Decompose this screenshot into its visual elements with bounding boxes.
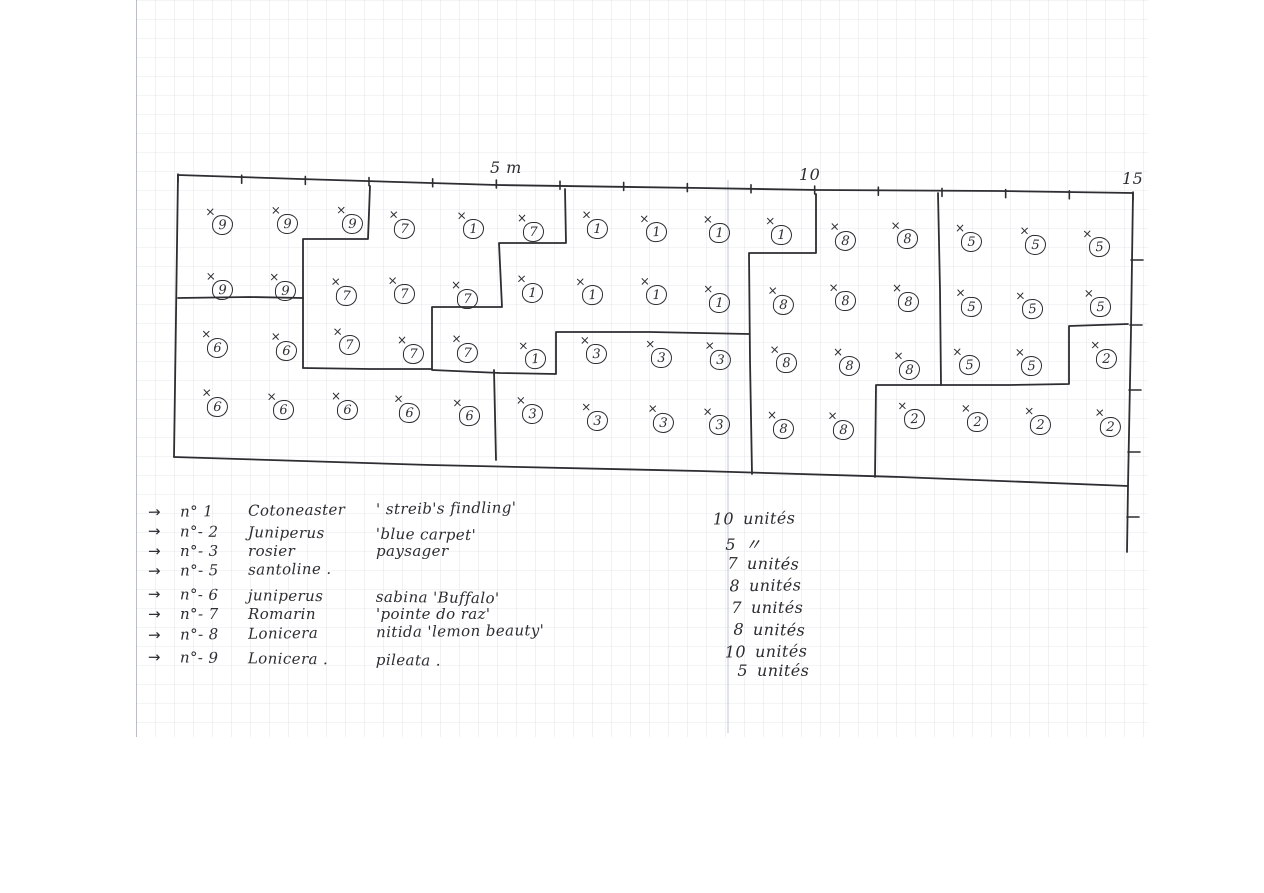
arrow-icon: →	[148, 542, 178, 560]
quantity-unit: unités	[757, 661, 809, 680]
quantity-value: 5	[720, 661, 748, 680]
quantity-unit: unités	[747, 554, 800, 574]
plant-number-circle: 1	[582, 284, 604, 305]
plant-mark-n3: ×3	[583, 407, 613, 434]
legend-number: n°- 8	[180, 625, 240, 644]
plant-mark-n1: ×1	[642, 281, 672, 308]
plant-mark-n3: ×3	[705, 345, 736, 373]
quantity-unit: unités	[743, 508, 796, 528]
divider-zone7-bottom	[303, 368, 432, 369]
plant-mark-n7: ×7	[389, 214, 420, 242]
plant-number-circle: 1	[522, 283, 544, 304]
plant-mark-n1: ×1	[518, 278, 549, 305]
plant-number-circle: 6	[275, 340, 297, 361]
plant-number-circle: 3	[586, 344, 607, 364]
plant-number-circle: 5	[1089, 236, 1111, 257]
plant-mark-n5: ×5	[954, 350, 985, 378]
x-marker: ×	[518, 338, 529, 353]
plant-mark-n5: ×5	[957, 292, 988, 319]
plant-mark-n5: ×5	[1021, 230, 1052, 257]
quantity-value: 8	[716, 619, 744, 638]
x-marker: ×	[201, 385, 212, 400]
plant-mark-n2: ×2	[899, 404, 930, 432]
x-marker: ×	[397, 333, 407, 347]
plant-mark-n1: ×1	[577, 280, 608, 308]
plant-mark-n1: ×1	[705, 289, 735, 316]
quantity-value: 7	[714, 598, 742, 617]
x-marker: ×	[827, 408, 838, 422]
plant-mark-n1: ×1	[641, 217, 672, 245]
x-marker: ×	[892, 281, 902, 295]
plant-number-circle: 1	[463, 219, 485, 240]
plant-number-circle: 6	[399, 403, 421, 424]
plant-number-circle: 8	[834, 230, 856, 251]
plant-name: Lonicera	[248, 624, 318, 643]
plant-number-circle: 9	[275, 281, 296, 301]
plant-mark-n2: ×2	[1095, 412, 1126, 440]
plant-mark-n5: ×5	[1084, 232, 1115, 260]
legend-number: n°- 7	[180, 605, 240, 623]
divider-zone8-zone5	[938, 193, 941, 385]
plant-number-circle: 8	[835, 291, 857, 312]
plant-number-circle: 1	[709, 223, 730, 243]
x-marker: ×	[640, 274, 650, 288]
x-marker: ×	[955, 221, 965, 235]
arrow-icon: →	[148, 503, 178, 521]
plant-name: Lonicera .	[248, 649, 329, 668]
quantity-row: 8unités	[716, 619, 806, 639]
quantity-value: 10	[718, 642, 746, 661]
x-marker: ×	[517, 211, 527, 225]
plant-number-circle: 7	[457, 343, 479, 364]
x-marker: ×	[1090, 338, 1100, 352]
plant-mark-n6: ×6	[333, 396, 363, 422]
plant-mark-n9: ×9	[271, 277, 301, 304]
plant-mark-n3: ×3	[518, 400, 548, 427]
plan-left-edge	[174, 175, 178, 457]
plant-number-circle: 6	[206, 396, 228, 417]
arrow-icon: →	[148, 522, 178, 540]
plant-number-circle: 8	[776, 353, 798, 374]
plant-mark-n7: ×7	[399, 340, 429, 366]
plant-number-circle: 7	[335, 285, 357, 306]
quantity-row: 10unités	[706, 508, 796, 528]
plant-mark-n8: ×8	[835, 352, 865, 378]
quantity-unit: unités	[751, 598, 803, 617]
plan-top-edge	[178, 175, 1133, 193]
plant-number-circle: 9	[212, 280, 233, 300]
plant-number-circle: 5	[1022, 298, 1044, 319]
x-marker: ×	[581, 400, 591, 414]
plant-mark-n7: ×7	[331, 281, 362, 309]
plant-name: Romarin	[248, 605, 316, 623]
plant-cultivar: nitida 'lemon beauty'	[376, 621, 544, 641]
plant-number-circle: 8	[839, 356, 860, 376]
plant-cultivar: 'pointe do raz'	[376, 605, 490, 623]
x-marker: ×	[271, 203, 281, 217]
plant-name: Cotoneaster	[248, 501, 345, 520]
quantity-unit: unités	[753, 620, 806, 640]
scale-label-5m: 5 m	[490, 158, 522, 177]
plant-mark-n3: ×3	[705, 410, 736, 437]
x-marker: ×	[266, 389, 277, 403]
plant-mark-n9: ×9	[273, 210, 303, 237]
x-marker: ×	[516, 393, 526, 407]
plant-number-circle: 6	[207, 338, 228, 358]
plant-mark-n8: ×8	[772, 348, 803, 375]
plan-bottom-edge	[174, 457, 1128, 486]
plant-number-circle: 5	[1090, 297, 1111, 317]
x-marker: ×	[952, 344, 963, 359]
legend-number: n°- 3	[180, 542, 240, 560]
x-marker: ×	[893, 348, 904, 362]
x-marker: ×	[829, 219, 840, 234]
quantity-value: 10	[706, 509, 734, 528]
arrow-icon: →	[148, 605, 178, 623]
scanned-planting-plan: 5 m1015 ×9×9×9×7×1×7×1×1×1×1×8×8×5×5×5×9…	[0, 0, 1264, 893]
plant-number-circle: 7	[394, 284, 416, 305]
plant-mark-n1: ×1	[459, 214, 490, 241]
plant-mark-n1: ×1	[767, 221, 797, 248]
plant-mark-n6: ×6	[203, 334, 233, 361]
plant-number-circle: 9	[277, 214, 298, 234]
plant-mark-n1: ×1	[520, 344, 551, 372]
plant-number-circle: 5	[961, 232, 982, 252]
plant-number-circle: 1	[587, 219, 609, 240]
plant-mark-n7: ×7	[519, 218, 549, 244]
plant-number-circle: 3	[709, 349, 731, 370]
quantity-row: 8unités	[712, 575, 802, 595]
plant-number-circle: 8	[833, 420, 855, 441]
plant-number-circle: 3	[522, 404, 543, 424]
plant-number-circle: 2	[1030, 415, 1051, 435]
legend-number: n° 1	[180, 502, 240, 521]
plant-number-circle: 6	[459, 405, 481, 426]
plant-number-circle: 5	[959, 354, 981, 375]
x-marker: ×	[575, 274, 586, 289]
plant-cultivar: ' streib's findling'	[376, 499, 516, 519]
plant-mark-n6: ×6	[454, 401, 485, 429]
plant-mark-n2: ×2	[1092, 345, 1122, 372]
quantity-value: 5	[708, 535, 736, 554]
x-marker: ×	[833, 345, 843, 359]
plant-number-circle: 8	[772, 294, 794, 315]
plant-cultivar: pileata .	[376, 651, 441, 670]
plant-number-circle: 3	[652, 412, 674, 433]
legend-number: n°- 5	[180, 561, 240, 580]
plant-mark-n3: ×3	[647, 344, 677, 371]
plant-mark-n9: ×9	[208, 276, 238, 303]
plant-mark-n8: ×8	[894, 288, 924, 314]
plant-number-circle: 9	[212, 214, 234, 235]
quantity-unit: unités	[755, 641, 808, 661]
plant-number-circle: 7	[339, 335, 361, 356]
plant-mark-n8: ×8	[829, 415, 860, 442]
x-marker: ×	[1015, 345, 1025, 359]
plant-number-circle: 7	[393, 218, 415, 239]
plant-mark-n5: ×5	[1017, 352, 1047, 379]
x-marker: ×	[451, 331, 462, 345]
plant-number-circle: 1	[646, 285, 667, 305]
plant-number-circle: 2	[1099, 416, 1121, 437]
plant-mark-n2: ×2	[963, 408, 993, 435]
plant-mark-n8: ×8	[830, 226, 861, 254]
quantity-row: 10unités	[718, 641, 808, 661]
x-marker: ×	[516, 271, 527, 285]
plant-number-circle: 2	[904, 408, 926, 429]
plant-mark-n5: ×5	[1017, 294, 1048, 322]
x-marker: ×	[961, 401, 971, 415]
plant-number-circle: 9	[342, 214, 363, 234]
x-marker: ×	[703, 282, 713, 296]
quantity-unit: 〃	[745, 531, 761, 555]
x-marker: ×	[765, 214, 775, 228]
plant-mark-n6: ×6	[269, 395, 300, 422]
arrow-icon: →	[148, 626, 178, 644]
plan-outline-svg	[0, 0, 1264, 893]
x-marker: ×	[1024, 404, 1034, 418]
plant-mark-n1: ×1	[705, 219, 735, 246]
x-marker: ×	[201, 327, 211, 341]
plan-right-edge	[1127, 193, 1133, 552]
plant-number-circle: 3	[709, 415, 731, 436]
x-marker: ×	[702, 404, 713, 418]
arrow-icon: →	[148, 585, 178, 603]
plant-mark-n7: ×7	[390, 279, 421, 306]
plant-number-circle: 6	[337, 400, 358, 420]
plant-number-circle: 1	[709, 293, 730, 313]
plant-mark-n5: ×5	[1086, 293, 1116, 320]
plant-number-circle: 6	[273, 400, 295, 421]
x-marker: ×	[336, 203, 346, 217]
plant-number-circle: 8	[898, 292, 919, 312]
plant-mark-n3: ×3	[582, 340, 612, 367]
plant-mark-n6: ×6	[271, 336, 302, 364]
quantity-row: 7unités	[714, 598, 803, 617]
x-marker: ×	[703, 212, 713, 226]
x-marker: ×	[331, 389, 341, 403]
arrow-icon: →	[148, 562, 178, 580]
plant-mark-n6: ×6	[395, 398, 426, 425]
x-marker: ×	[332, 324, 343, 338]
x-marker: ×	[890, 218, 901, 232]
legend-number: n°- 6	[180, 585, 240, 604]
quantity-row: 7unités	[710, 553, 800, 573]
plant-mark-n7: ×7	[453, 338, 484, 365]
plant-number-circle: 7	[403, 344, 424, 364]
scale-label-15m: 15	[1122, 169, 1143, 188]
plant-number-circle: 3	[587, 411, 608, 431]
plant-mark-n8: ×8	[769, 415, 799, 441]
plant-mark-n8: ×8	[893, 224, 924, 251]
plant-mark-n1: ×1	[583, 214, 614, 241]
plant-mark-n5: ×5	[957, 228, 987, 254]
plant-mark-n9: ×9	[338, 210, 368, 237]
plant-mark-n8: ×8	[768, 290, 799, 318]
scale-label-10m: 10	[799, 165, 820, 184]
plant-number-circle: 7	[457, 289, 478, 309]
plant-number-circle: 5	[1021, 356, 1042, 376]
arrow-icon: →	[148, 648, 178, 666]
plant-mark-n2: ×2	[1026, 411, 1056, 438]
quantity-row: 5〃	[708, 531, 761, 555]
plant-number-circle: 1	[646, 221, 668, 242]
plant-mark-n9: ×9	[207, 210, 238, 238]
plant-number-circle: 2	[1096, 349, 1117, 369]
plant-mark-n7: ×7	[335, 330, 366, 357]
plant-mark-n7: ×7	[453, 285, 483, 311]
plant-number-circle: 8	[899, 360, 921, 381]
plant-number-circle: 5	[961, 297, 983, 318]
plant-number-circle: 1	[771, 225, 792, 245]
plant-name: santoline .	[248, 560, 332, 579]
plant-number-circle: 8	[897, 229, 919, 250]
plant-name: juniperus	[248, 586, 324, 605]
plant-name: rosier	[248, 542, 295, 560]
quantity-value: 8	[712, 576, 740, 595]
quantity-unit: unités	[749, 575, 802, 595]
plant-number-circle: 1	[525, 348, 547, 369]
plant-name: Juniperus	[248, 523, 325, 542]
legend-number: n°- 2	[180, 522, 240, 541]
plant-mark-n6: ×6	[202, 392, 233, 420]
plant-number-circle: 3	[651, 348, 672, 368]
plant-cultivar: paysager	[376, 542, 449, 560]
quantity-value: 7	[710, 553, 738, 572]
quantity-row: 5unités	[720, 661, 809, 680]
plant-number-circle: 7	[523, 222, 544, 242]
plant-number-circle: 2	[967, 412, 988, 432]
x-marker: ×	[767, 408, 777, 422]
divider-zone6-zone3	[494, 370, 496, 460]
plant-number-circle: 8	[773, 419, 794, 439]
plant-mark-n8: ×8	[831, 286, 862, 313]
plant-mark-n3: ×3	[648, 408, 679, 436]
plant-number-circle: 5	[1025, 235, 1047, 256]
plant-mark-n8: ×8	[895, 355, 926, 382]
x-marker: ×	[451, 278, 461, 292]
legend-number: n°- 9	[180, 648, 240, 667]
